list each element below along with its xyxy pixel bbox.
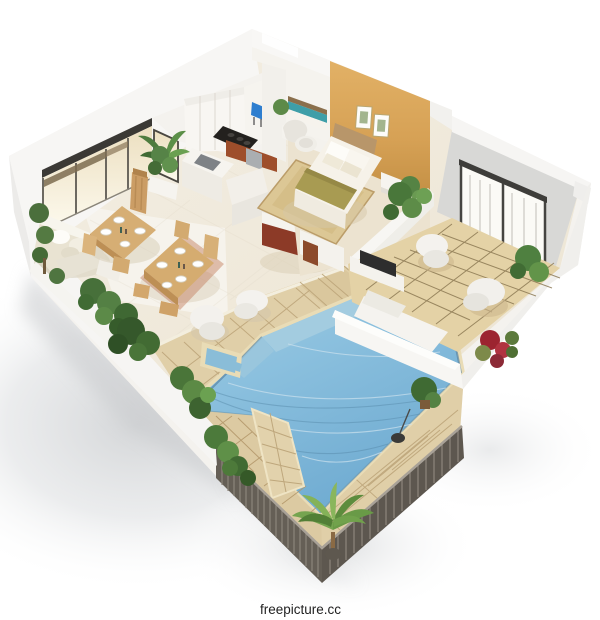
svg-text:freepicture.cc: freepicture.cc <box>260 602 341 617</box>
